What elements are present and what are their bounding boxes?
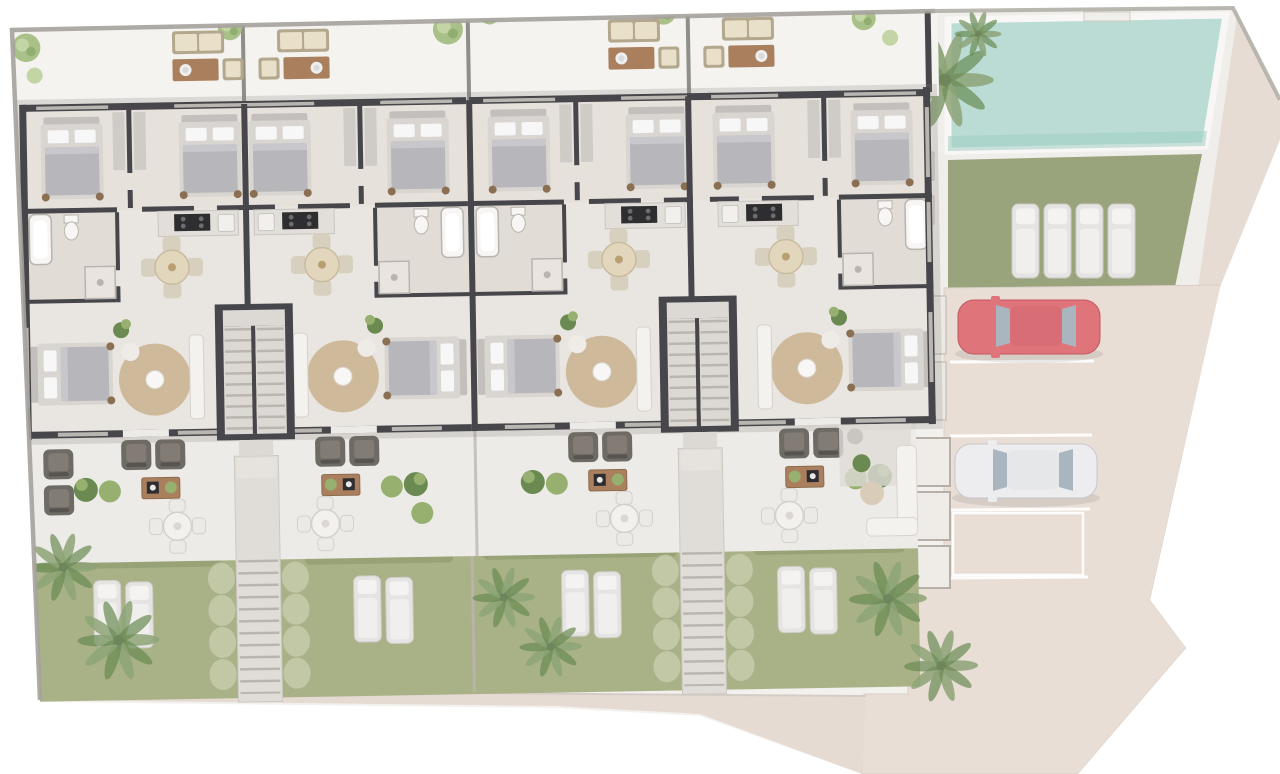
floor-plan-page — [0, 0, 1280, 774]
bedroom-band — [22, 92, 932, 212]
site-plan — [0, 0, 1280, 774]
stair-core — [659, 295, 740, 448]
front-stair-path — [234, 455, 282, 702]
white-car — [952, 440, 1100, 507]
front-stair-path — [678, 448, 726, 695]
buildings-group — [0, 0, 979, 719]
stair-core — [215, 303, 296, 456]
pool-lawn — [948, 154, 1202, 294]
pool-ladder — [1084, 12, 1130, 21]
red-car — [955, 296, 1103, 363]
